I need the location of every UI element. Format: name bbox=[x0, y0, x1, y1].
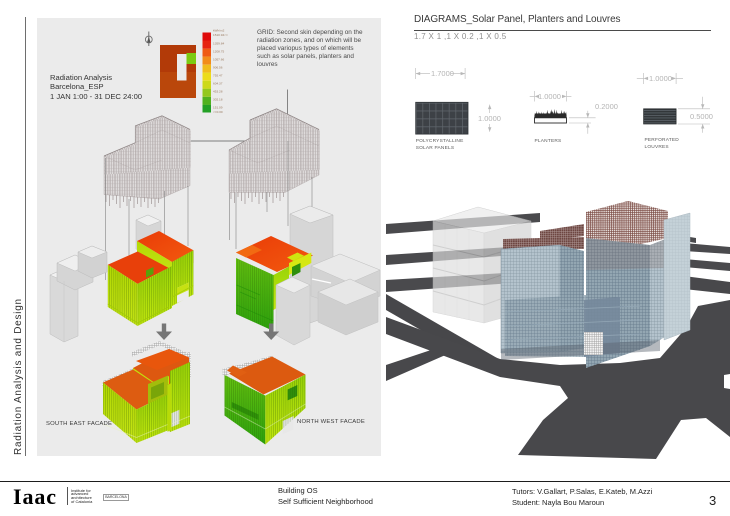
svg-text:<=0.00: <=0.00 bbox=[213, 110, 223, 114]
svg-text:302.18: 302.18 bbox=[213, 98, 223, 102]
svg-text:453.28: 453.28 bbox=[213, 90, 223, 94]
svg-text:1057.66: 1057.66 bbox=[213, 57, 224, 61]
svg-text:kWh/m2: kWh/m2 bbox=[213, 29, 225, 33]
svg-text:1359.84: 1359.84 bbox=[213, 41, 224, 45]
svg-text:1208.75: 1208.75 bbox=[213, 49, 224, 53]
svg-text:906.56: 906.56 bbox=[213, 65, 223, 69]
svg-text:755.47: 755.47 bbox=[213, 74, 223, 78]
svg-text:604.37: 604.37 bbox=[213, 82, 223, 86]
svg-text:1510.94<=: 1510.94<= bbox=[213, 33, 228, 37]
